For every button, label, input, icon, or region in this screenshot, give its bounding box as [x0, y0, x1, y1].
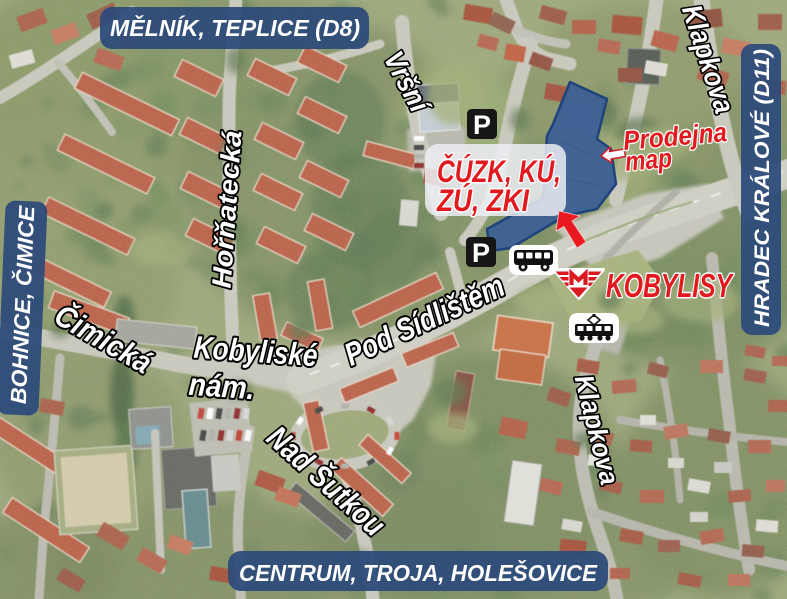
svg-text:CENTRUM, TROJA, HOLEŠOVICE: CENTRUM, TROJA, HOLEŠOVICE: [239, 559, 598, 586]
svg-text:KOBYLISY: KOBYLISY: [606, 267, 734, 304]
svg-text:P: P: [473, 110, 491, 140]
svg-text:map: map: [624, 143, 673, 177]
svg-text:HRADEC KRÁLOVÉ (D11): HRADEC KRÁLOVÉ (D11): [751, 49, 774, 327]
svg-text:MĚLNÍK, TEPLICE (D8): MĚLNÍK, TEPLICE (D8): [110, 14, 360, 41]
svg-text:nám.: nám.: [188, 366, 256, 407]
svg-text:ZÚ, ZKI: ZÚ, ZKI: [436, 182, 530, 218]
svg-text:P: P: [472, 238, 490, 268]
